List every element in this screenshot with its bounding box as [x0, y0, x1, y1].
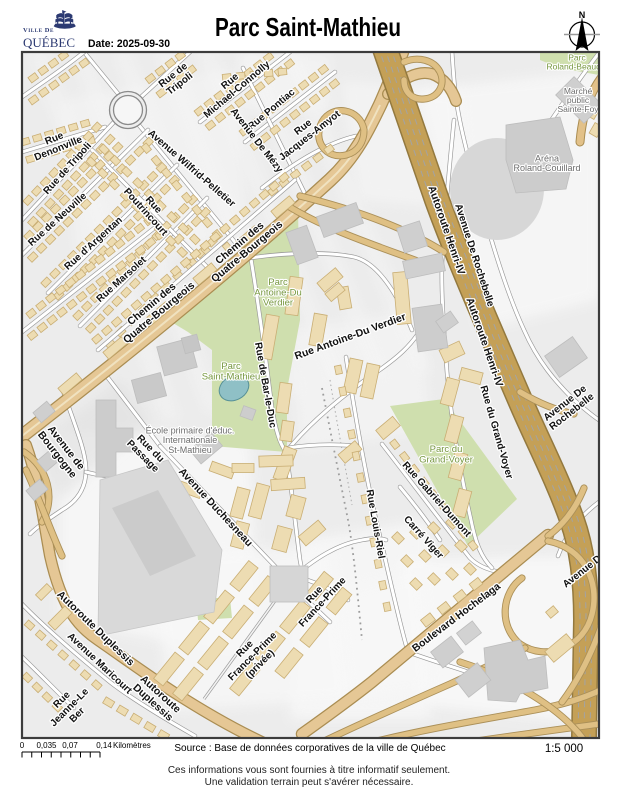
svg-text:Roland-Couillard: Roland-Couillard — [513, 163, 580, 173]
svg-text:0: 0 — [20, 741, 25, 750]
svg-text:Kilomètres: Kilomètres — [113, 741, 151, 750]
svg-text:Parc Saint-Mathieu: Parc Saint-Mathieu — [215, 12, 401, 42]
svg-text:Verdier: Verdier — [263, 298, 293, 309]
svg-text:0,07: 0,07 — [62, 741, 78, 750]
svg-text:Saint-Mathieu: Saint-Mathieu — [202, 372, 261, 383]
svg-text:Aréna: Aréna — [535, 153, 559, 163]
svg-text:École primaire d'éduc.: École primaire d'éduc. — [146, 425, 235, 435]
svg-text:Ces informations vous sont fou: Ces informations vous sont fournies à ti… — [168, 765, 450, 776]
svg-text:Internationale: Internationale — [163, 435, 218, 445]
svg-text:Date: 2025-09-30: Date: 2025-09-30 — [88, 38, 170, 50]
svg-text:Grand-Voyer: Grand-Voyer — [419, 455, 473, 466]
svg-text:0,14: 0,14 — [96, 741, 112, 750]
svg-text:Source : Base de données corpo: Source : Base de données corporatives de… — [174, 743, 445, 754]
svg-text:Sainte-Foy: Sainte-Foy — [557, 104, 599, 114]
svg-text:QUÉBEC: QUÉBEC — [23, 35, 75, 50]
svg-text:VILLE DE: VILLE DE — [23, 27, 54, 34]
svg-text:1:5 000: 1:5 000 — [545, 743, 583, 755]
svg-text:0,035: 0,035 — [36, 741, 57, 750]
svg-text:Une validation terrain peut s': Une validation terrain peut s'avérer néc… — [205, 777, 414, 788]
svg-text:St-Mathieu: St-Mathieu — [168, 445, 212, 455]
